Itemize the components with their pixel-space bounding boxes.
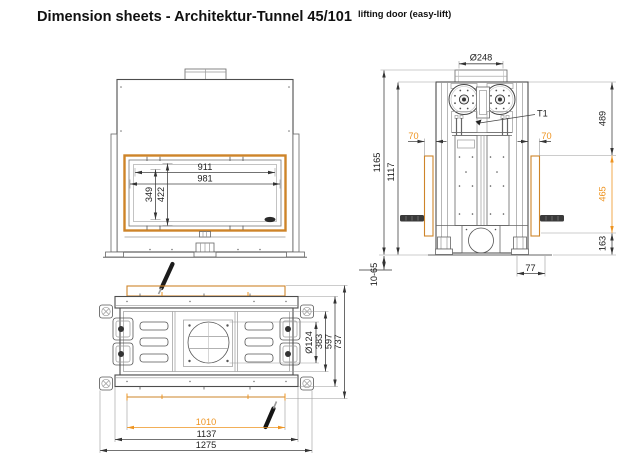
page-subtitle: lifting door (easy-lift)	[358, 8, 451, 19]
plan-body	[120, 308, 293, 375]
plan-dim-width-frame: 1010	[127, 401, 285, 431]
side-dim-465-label: 465	[598, 186, 608, 201]
plan-corner-tab-tl	[100, 305, 113, 318]
side-dim-1117-label: 1117	[386, 162, 396, 181]
plan-dim-383-label: 383	[314, 334, 324, 349]
side-handle-left	[400, 215, 424, 222]
front-dim-911-label: 911	[198, 162, 213, 172]
side-dim-base-depth: 77	[517, 256, 545, 277]
side-view: T1 Ø248 1165 1117 10-65 70	[359, 53, 616, 287]
side-dim-1065-label: 10-65	[369, 263, 379, 287]
side-dim-70-right-label: 70	[541, 131, 551, 141]
side-dim-70-left-label: 70	[408, 131, 418, 141]
plan-corner-tab-br	[301, 377, 314, 390]
plan-view: 1010 1137 1275 Ø124 383	[100, 286, 348, 454]
side-dim-248-label: Ø248	[470, 53, 492, 63]
plan-dim-1275-label: 1275	[196, 440, 216, 450]
front-flue-box	[185, 69, 226, 80]
plan-dim-597-label: 597	[324, 334, 334, 349]
plan-corner-tab-bl	[100, 377, 113, 390]
plan-dim-737-label: 737	[333, 334, 343, 349]
side-pulley-left	[449, 85, 479, 115]
plan-cold-hand-tool	[266, 402, 277, 428]
front-dim-349-label: 349	[144, 187, 154, 202]
side-dim-flue-diameter: Ø248	[459, 53, 503, 69]
front-cold-hand-tool	[159, 264, 173, 294]
plan-dim-1137-label: 1137	[197, 429, 217, 439]
side-flue-collar	[455, 70, 507, 82]
dimension-sheet-page: Dimension sheets - Architektur-Tunnel 45…	[0, 0, 624, 460]
side-handle-right	[540, 215, 564, 222]
front-dim-981-label: 981	[197, 174, 212, 184]
side-dim-foot-range: 10-65	[369, 256, 384, 286]
dimension-sheet-drawing: Dimension sheets - Architektur-Tunnel 45…	[0, 0, 624, 460]
front-door-handle	[265, 217, 276, 222]
plan-frame-strip-bottom	[127, 394, 285, 401]
page-title: Dimension sheets - Architektur-Tunnel 45…	[37, 9, 352, 25]
front-dim-422-label: 422	[156, 187, 166, 202]
side-dim-163-label: 163	[598, 236, 608, 251]
plan-dim-1010-label: 1010	[196, 417, 216, 427]
side-dim-1165-label: 1165	[372, 153, 382, 173]
front-view: 911 981 349 422	[103, 69, 307, 294]
plan-dim-124-label: Ø124	[304, 331, 314, 353]
side-dim-489-label: 489	[598, 111, 608, 126]
t1-label: T1	[537, 109, 548, 119]
side-dim-height-body: 1117	[386, 82, 436, 255]
side-dim-77-label: 77	[525, 263, 535, 273]
plan-bottom-bar	[115, 375, 298, 390]
